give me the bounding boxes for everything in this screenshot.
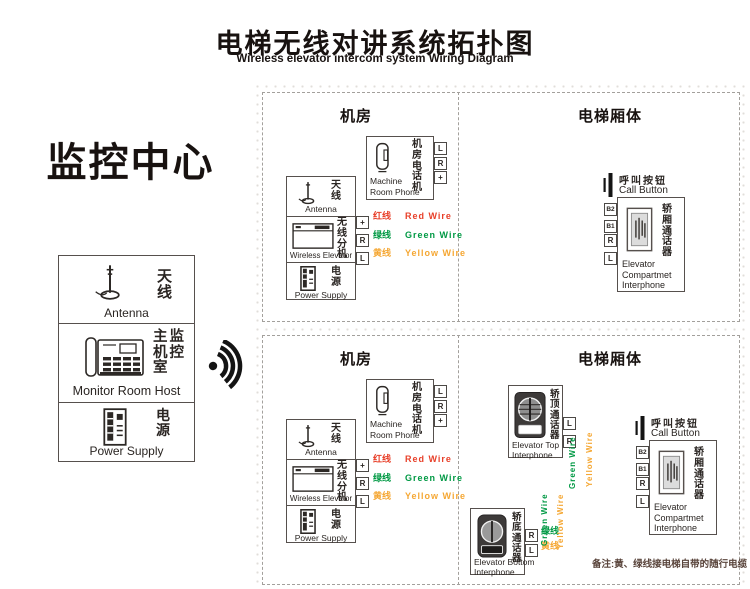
compartment-label-zh: 轿厢通话器 xyxy=(694,448,705,502)
machine-room-header: 机房 xyxy=(340,348,372,369)
wall-phone-icon xyxy=(373,142,395,174)
phone-label-en1: Machine xyxy=(370,176,402,186)
monitor-center-heading: 监控中心 xyxy=(38,130,223,188)
power-label-zh: 电源 xyxy=(331,510,342,532)
phone-label-en2: Room Phone xyxy=(370,187,420,197)
top-interphone-label-en1: Elevator Top xyxy=(512,440,559,450)
terminal-r: R xyxy=(636,477,649,490)
compartment-label-en2: Compartmet xyxy=(622,270,672,280)
top-interphone-label-zh: 轿顶通话器 xyxy=(550,390,560,441)
divider xyxy=(59,402,194,403)
compartment-label-en3: Interphone xyxy=(654,523,697,533)
antenna-icon xyxy=(93,262,127,306)
intercom-icon xyxy=(658,449,685,496)
intercom-icon xyxy=(626,206,653,253)
green-wire-vertical-label: Green Wire xyxy=(540,493,549,546)
terminal-l: L xyxy=(434,142,447,155)
station-box: 天线 Antenna 无线分机 Wireless Elevator 电源 Pow… xyxy=(286,176,356,300)
wall-phone-icon xyxy=(373,385,395,417)
terminal-l: L xyxy=(563,417,576,430)
power-label-zh: 电源 xyxy=(331,267,342,289)
terminal-r: R xyxy=(356,477,369,490)
terminal-r: R xyxy=(525,529,538,542)
panel-1-divider xyxy=(458,92,459,322)
terminal-l: L xyxy=(636,495,649,508)
top-interphone-label-en2: Interphone xyxy=(512,450,553,460)
car-body-header: 电梯厢体 xyxy=(578,105,642,126)
wireless-extension-icon xyxy=(291,223,335,249)
terminal-plus: + xyxy=(434,171,447,184)
page-title-en: Wireless elevator intercom system Wiring… xyxy=(0,53,750,65)
bottom-interphone-box: 轿底通话器 Elevator Bottom Interphone xyxy=(470,508,525,575)
call-button-icon xyxy=(632,415,646,441)
terminal-l: L xyxy=(434,385,447,398)
terminal-plus: + xyxy=(434,414,447,427)
terminal-b1: B1 xyxy=(636,463,649,476)
signal-waves-icon xyxy=(206,340,250,392)
host-label-zh: 主监机控室 xyxy=(153,330,184,377)
machine-room-phone-box: 机房电话机 Machine Room Phone xyxy=(366,379,434,443)
compartment-label-en1: Elevator xyxy=(622,259,655,269)
power-supply-icon xyxy=(103,408,127,446)
divider xyxy=(287,262,355,263)
terminal-r: R xyxy=(434,400,447,413)
wireless-extension-icon xyxy=(291,466,335,492)
call-button-label-en: Call Button xyxy=(619,185,668,196)
host-label-en: Monitor Room Host xyxy=(59,384,194,398)
red-wire-label: 红线Red Wire xyxy=(373,209,452,222)
antenna-label-en: Antenna xyxy=(287,447,355,457)
antenna-label-en: Antenna xyxy=(59,306,194,320)
compartment-label-zh: 轿厢通话器 xyxy=(662,205,673,259)
terminal-plus: + xyxy=(356,459,369,472)
terminal-b2: B2 xyxy=(636,446,649,459)
power-label-en: Power Supply xyxy=(287,533,355,543)
green-wire-vertical-label: Green Wire xyxy=(568,436,577,489)
divider xyxy=(59,323,194,324)
power-label-en: Power Supply xyxy=(59,444,194,458)
terminal-l: L xyxy=(356,495,369,508)
desk-phone-icon xyxy=(83,331,147,383)
machine-room-phone-box: 机房电话机 Machine Room Phone xyxy=(366,136,434,200)
phone-label-zh: 机房电话机 xyxy=(412,140,423,194)
antenna-label-zh: 天线 xyxy=(157,269,173,301)
speaker-icon xyxy=(514,391,546,439)
terminal-r: R xyxy=(434,157,447,170)
green-wire-label: 绿线Green Wire xyxy=(373,471,463,484)
power-label-zh: 电源 xyxy=(156,408,171,438)
phone-label-en2: Room Phone xyxy=(370,430,420,440)
machine-room-header: 机房 xyxy=(340,105,372,126)
compartment-label-en2: Compartmet xyxy=(654,513,704,523)
wireless-label-en: Wireless Elevator xyxy=(287,494,355,503)
top-interphone-box: 轿顶通话器 Elevator Top Interphone xyxy=(508,385,563,458)
yellow-wire-vertical-label: Yellow Wire xyxy=(556,494,565,549)
terminal-b2: B2 xyxy=(604,203,617,216)
phone-label-zh: 机房电话机 xyxy=(412,383,423,437)
power-label-en: Power Supply xyxy=(287,290,355,300)
green-wire-label: 绿线Green Wire xyxy=(373,228,463,241)
compartment-label-en3: Interphone xyxy=(622,280,665,290)
footnote: 备注:黄、绿线接电梯自带的随行电缆 xyxy=(592,556,747,570)
monitor-center-box: 天线 Antenna 主监机控室 Monitor Room Host xyxy=(58,255,195,462)
red-wire-label: 红线Red Wire xyxy=(373,452,452,465)
terminal-plus: + xyxy=(356,216,369,229)
call-button-icon xyxy=(600,172,614,198)
power-supply-icon xyxy=(300,266,316,291)
antenna-label-zh: 天线 xyxy=(331,424,342,446)
yellow-wire-label: 黄线Yellow Wire xyxy=(373,246,466,259)
compartment-label-en1: Elevator xyxy=(654,502,687,512)
yellow-wire-vertical-label: Yellow Wire xyxy=(585,432,594,487)
terminal-l: L xyxy=(525,544,538,557)
bottom-interphone-label-en2: Interphone xyxy=(474,567,515,577)
terminal-r: R xyxy=(604,234,617,247)
terminal-r: R xyxy=(356,234,369,247)
panel-2-divider xyxy=(458,335,459,585)
antenna-label-en: Antenna xyxy=(287,204,355,214)
station-box: 天线 Antenna 无线分机 Wireless Elevator 电源 Pow… xyxy=(286,419,356,543)
terminal-l: L xyxy=(356,252,369,265)
wireless-label-en: Wireless Elevator xyxy=(287,251,355,260)
phone-label-en1: Machine xyxy=(370,419,402,429)
wiring-diagram-canvas: 电梯无线对讲系统拓扑图 Wireless elevator intercom s… xyxy=(0,0,750,589)
terminal-b1: B1 xyxy=(604,220,617,233)
divider xyxy=(287,505,355,506)
power-supply-icon xyxy=(300,509,316,534)
terminal-l: L xyxy=(604,252,617,265)
yellow-wire-label: 黄线Yellow Wire xyxy=(373,489,466,502)
speaker-icon xyxy=(477,514,507,558)
compartment-interphone-box: 轿厢通话器 Elevator Compartmet Interphone xyxy=(649,440,717,535)
call-button-label-en: Call Button xyxy=(651,428,700,439)
car-body-header: 电梯厢体 xyxy=(578,348,642,369)
bottom-interphone-label-en1: Elevator Bottom xyxy=(474,557,534,567)
antenna-label-zh: 天线 xyxy=(331,181,342,203)
compartment-interphone-box: 轿厢通话器 Elevator Compartmet Interphone xyxy=(617,197,685,292)
